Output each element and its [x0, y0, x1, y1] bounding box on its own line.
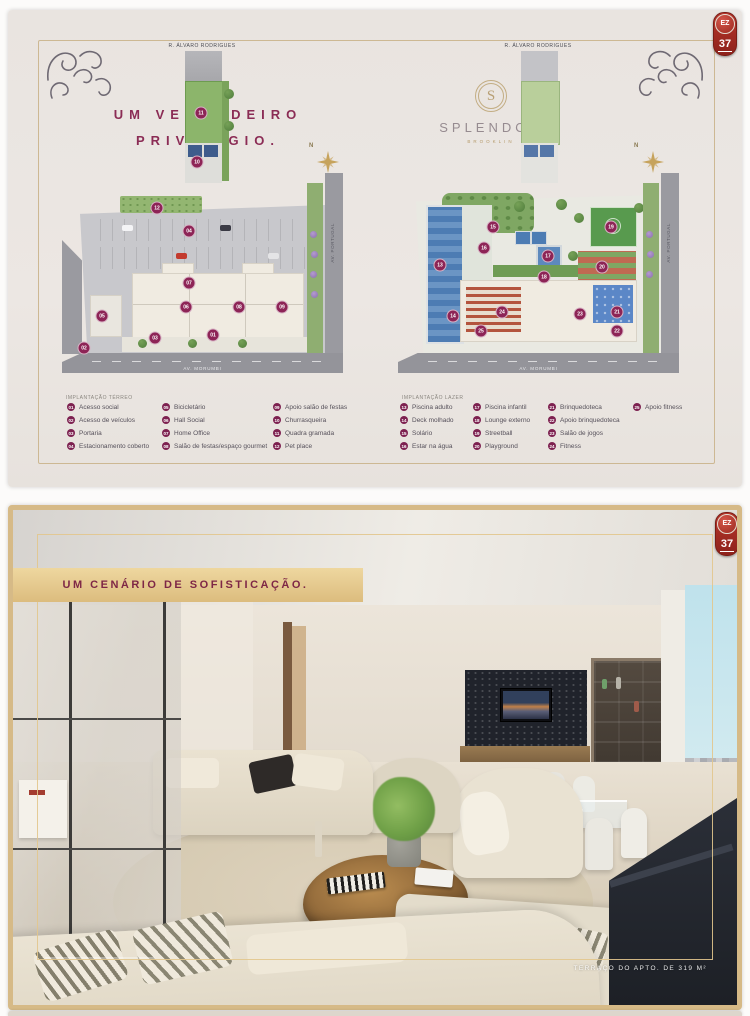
legend-number-badge: 04 — [67, 442, 75, 450]
adult-pool — [426, 205, 464, 344]
driveway-street — [185, 51, 222, 81]
tree — [224, 89, 234, 99]
ez-logo: EZ — [715, 14, 735, 34]
plan-marker: 02 — [78, 342, 91, 355]
white-book — [414, 867, 453, 887]
legend-label: Salão de jogos — [560, 430, 603, 437]
plan-marker: 14 — [447, 310, 460, 323]
legend-number-badge: 25 — [633, 403, 641, 411]
legend-item: 15Solário — [400, 429, 454, 437]
spa-pool — [531, 231, 547, 245]
legend-number-badge: 12 — [273, 442, 281, 450]
tree — [574, 213, 584, 223]
legend-number-badge: 09 — [273, 403, 281, 411]
street-label-bottom: AV. MORUMBI — [398, 366, 679, 371]
glass-frame-rail — [13, 718, 181, 720]
compass-north-label: N — [634, 143, 638, 149]
legend-label: Piscina adulto — [412, 404, 452, 411]
seat-cushion — [246, 922, 409, 976]
legend-item: 16Estar na água — [400, 442, 454, 450]
legend-label: Apoio salão de festas — [285, 404, 347, 411]
legend-item: 25Apoio fitness — [633, 403, 682, 411]
legend-item: 11Quadra gramada — [273, 429, 347, 437]
fine-print-line — [45, 957, 155, 959]
legend-item: 20Playground — [473, 442, 530, 450]
side-garden — [643, 183, 659, 355]
legend-column: 01Acesso social 02Acesso de veículos 03P… — [67, 403, 149, 450]
bottle — [616, 677, 621, 689]
legend-label: Quadra gramada — [285, 430, 334, 437]
plan-marker: 04 — [183, 225, 196, 238]
street-av-portugal: AV. PORTUGAL — [661, 173, 679, 361]
fitness-room — [466, 287, 521, 332]
console-behind-glass — [19, 780, 67, 838]
legend-label: Solário — [412, 430, 432, 437]
flower-shrub — [311, 291, 318, 298]
legend-number-badge: 20 — [473, 442, 481, 450]
legend-number-badge: 14 — [400, 416, 408, 424]
legend-item: 10Churrasqueira — [273, 416, 347, 424]
utility-block — [204, 145, 218, 157]
plan-marker: 08 — [233, 301, 246, 314]
legend-item: 22Apoio brinquedoteca — [548, 416, 620, 424]
legend-number-badge: 11 — [273, 429, 281, 437]
legend-number-badge: 08 — [162, 442, 170, 450]
street-label-top: R. ÁLVARO RODRIGUES — [468, 43, 608, 49]
flower-shrub — [646, 271, 653, 278]
legend-label: Pet place — [285, 443, 312, 450]
section-banner: UM CENÁRIO DE SOFISTICAÇÃO. — [8, 568, 363, 602]
legend-label: Apoio fitness — [645, 404, 682, 411]
render-caption: TERRAÇO DO APTO. DE 319 M² — [574, 965, 707, 972]
legend-number-badge: 02 — [67, 416, 75, 424]
candle — [315, 821, 322, 857]
utility-block — [540, 145, 554, 157]
plan-marker: 25 — [475, 325, 488, 338]
car — [176, 253, 187, 259]
road-dashes — [428, 361, 659, 362]
legend-number-badge: 17 — [473, 403, 481, 411]
legend-number-badge: 23 — [548, 429, 556, 437]
plan-marker: 22 — [611, 325, 624, 338]
dining-chair — [585, 818, 613, 870]
red-books — [29, 790, 45, 795]
ez-37-brand-badge: EZ 37 — [715, 512, 739, 556]
legend-item: 04Estacionamento coberto — [67, 442, 149, 450]
legend-item: 07Home Office — [162, 429, 267, 437]
legend-column: 25Apoio fitness — [633, 403, 682, 411]
legend-item: 05Bicicletário — [162, 403, 267, 411]
glass-frame-rail — [13, 848, 181, 850]
plan-marker: 13 — [434, 259, 447, 272]
compass-north-label: N — [309, 143, 313, 149]
plan-marker: 09 — [276, 301, 289, 314]
plan-marker: 10 — [191, 156, 204, 169]
legend-label: Apoio brinquedoteca — [560, 417, 620, 424]
street-av-morumbi: AV. MORUMBI — [62, 353, 343, 373]
legend-number-badge: 15 — [400, 429, 408, 437]
glass-partition — [13, 590, 181, 975]
white-pillow — [456, 788, 512, 857]
street-av-portugal: AV. PORTUGAL — [325, 173, 343, 361]
legend-label: Churrasqueira — [285, 417, 326, 424]
access-lane — [62, 240, 82, 354]
legend-label: Estar na água — [412, 443, 452, 450]
plan-marker: 05 — [96, 310, 109, 323]
legend-label: Hall Social — [174, 417, 205, 424]
legend-number-badge: 07 — [162, 429, 170, 437]
car — [122, 225, 133, 231]
legend-label: Salão de festas/espaço gourmet — [174, 443, 267, 450]
legend-item: 08Salão de festas/espaço gourmet — [162, 442, 267, 450]
dining-chair — [621, 808, 647, 858]
glass-frame-mullion — [163, 590, 166, 975]
compass-rose-icon: N — [641, 150, 665, 174]
compass-star-icon — [316, 150, 340, 174]
side-garden — [307, 183, 323, 355]
legend-item: 18Lounge externo — [473, 416, 530, 424]
legend-item: 06Hall Social — [162, 416, 267, 424]
plan-marker: 18 — [538, 271, 551, 284]
plan-caption: IMPLANTAÇÃO TÉRREO — [66, 395, 133, 401]
spa-pool — [515, 231, 531, 245]
bottle — [602, 679, 607, 689]
flower-shrub — [310, 231, 317, 238]
plan-marker: 24 — [496, 306, 509, 319]
legend-label: Brinquedoteca — [560, 404, 602, 411]
wing-armchair — [453, 768, 583, 878]
legend-item: 13Piscina adulto — [400, 403, 454, 411]
legend-item: 12Pet place — [273, 442, 347, 450]
compass-star-icon — [641, 150, 665, 174]
ez-logo: EZ — [717, 514, 737, 534]
car — [220, 225, 231, 231]
plan-marker: 12 — [151, 202, 164, 215]
legend-number-badge: 03 — [67, 429, 75, 437]
legend-item: 01Acesso social — [67, 403, 149, 411]
legend-column: 21Brinquedoteca 22Apoio brinquedoteca 23… — [548, 403, 620, 450]
legend-number-badge: 16 — [400, 442, 408, 450]
legend-label: Piscina infantil — [485, 404, 527, 411]
legend-number-badge: 22 — [548, 416, 556, 424]
site-plan-ground-floor: R. ÁLVARO RODRIGUES — [62, 55, 352, 405]
legend-label: Estacionamento coberto — [79, 443, 149, 450]
street-label-side: AV. PORTUGAL — [666, 223, 671, 263]
legend-number-badge: 05 — [162, 403, 170, 411]
utility-block — [524, 145, 538, 157]
ez-37-brand-badge: EZ 37 — [713, 12, 737, 56]
legend-label: Deck molhado — [412, 417, 454, 424]
legend-label: Fitness — [560, 443, 581, 450]
plan-caption: IMPLANTAÇÃO LAZER — [402, 395, 463, 401]
black-pillow — [248, 754, 298, 794]
legend-item: 03Portaria — [67, 429, 149, 437]
tree — [188, 339, 197, 348]
plan-marker: 16 — [478, 242, 491, 255]
plan-marker: 07 — [183, 277, 196, 290]
legend-column: 17Piscina infantil 18Lounge externo 19St… — [473, 403, 530, 450]
green-plant — [373, 777, 435, 841]
legend-number-badge: 10 — [273, 416, 281, 424]
legend-number-badge: 13 — [400, 403, 408, 411]
plan-marker: 23 — [574, 308, 587, 321]
legend-label: Acesso de veículos — [79, 417, 135, 424]
legend-number-badge: 24 — [548, 442, 556, 450]
tree — [138, 339, 147, 348]
legend-number-badge: 19 — [473, 429, 481, 437]
legend-label: Portaria — [79, 430, 102, 437]
legend-item: 24Fitness — [548, 442, 620, 450]
plan-marker: 06 — [180, 301, 193, 314]
striped-pillow — [32, 928, 129, 1003]
door-frame — [283, 622, 292, 764]
legend-label: Acesso social — [79, 404, 119, 411]
flower-shrub — [647, 251, 654, 258]
lawn-area — [521, 81, 560, 145]
tv-screen — [500, 688, 552, 722]
legend-label: Lounge externo — [485, 417, 530, 424]
bottle — [634, 701, 639, 712]
tv-picture — [503, 691, 549, 719]
road-dashes — [92, 361, 323, 362]
plan-marker: 19 — [605, 221, 618, 234]
street-label-top: R. ÁLVARO RODRIGUES — [132, 43, 272, 49]
legend-item: 21Brinquedoteca — [548, 403, 620, 411]
tree — [514, 201, 525, 212]
street-label-side: AV. PORTUGAL — [330, 223, 335, 263]
plan-marker: 17 — [542, 250, 555, 263]
striped-books — [326, 872, 386, 895]
plan-marker: 20 — [596, 261, 609, 274]
legend-item: 14Deck molhado — [400, 416, 454, 424]
legend-item: 09Apoio salão de festas — [273, 403, 347, 411]
street-label-bottom: AV. MORUMBI — [62, 366, 343, 371]
street-av-morumbi: AV. MORUMBI — [398, 353, 679, 373]
plan-marker: 03 — [149, 332, 162, 345]
tree — [238, 339, 247, 348]
legend-item: 23Salão de jogos — [548, 429, 620, 437]
legend-number-badge: 21 — [548, 403, 556, 411]
chaise-sofa — [153, 750, 373, 835]
legend-column: 13Piscina adulto 14Deck molhado 15Solári… — [400, 403, 454, 450]
sideboard — [460, 746, 590, 763]
legend-number-badge: 06 — [162, 416, 170, 424]
legend-label: Streetball — [485, 430, 512, 437]
door-leaf — [292, 626, 306, 764]
flower-shrub — [310, 271, 317, 278]
legend-column: 05Bicicletário 06Hall Social 07Home Offi… — [162, 403, 267, 450]
legend-column: 09Apoio salão de festas 10Churrasqueira … — [273, 403, 347, 450]
cushion — [291, 753, 345, 792]
page-interior-render: UM CENÁRIO DE SOFISTICAÇÃO. TERRAÇO DO A… — [8, 505, 742, 1010]
flower-shrub — [311, 251, 318, 258]
plan-marker: 21 — [611, 306, 624, 319]
compass-rose-icon: N — [316, 150, 340, 174]
ez-number: 37 — [718, 37, 732, 52]
tree — [568, 251, 578, 261]
tree — [224, 121, 234, 131]
legend-label: Home Office — [174, 430, 210, 437]
plan-marker: 11 — [195, 107, 208, 120]
legend-label: Bicicletário — [174, 404, 205, 411]
next-page-edge — [8, 1011, 742, 1016]
car — [268, 253, 279, 259]
plan-marker: 15 — [487, 221, 500, 234]
legend-item: 02Acesso de veículos — [67, 416, 149, 424]
glass-frame-mullion — [69, 590, 72, 975]
tree — [556, 199, 567, 210]
legend-number-badge: 18 — [473, 416, 481, 424]
screenshot-root: { "brand_badge": {"top": "EZ", "bottom":… — [0, 0, 750, 1016]
site-plan-leisure-level: R. ÁLVARO RODRIGUES AV. PORTUGAL AV. MOR… — [398, 55, 688, 405]
driveway-street — [521, 51, 558, 81]
legend-label: Playground — [485, 443, 518, 450]
ez-number: 37 — [720, 537, 734, 552]
flower-shrub — [646, 231, 653, 238]
legend-item: 17Piscina infantil — [473, 403, 530, 411]
legend-number-badge: 01 — [67, 403, 75, 411]
page-site-plans: EZ 37 UM VERDADEIRO PRIVILÉGIO. S SPLEND… — [8, 10, 742, 487]
legend-item: 19Streetball — [473, 429, 530, 437]
plan-marker: 01 — [207, 329, 220, 342]
